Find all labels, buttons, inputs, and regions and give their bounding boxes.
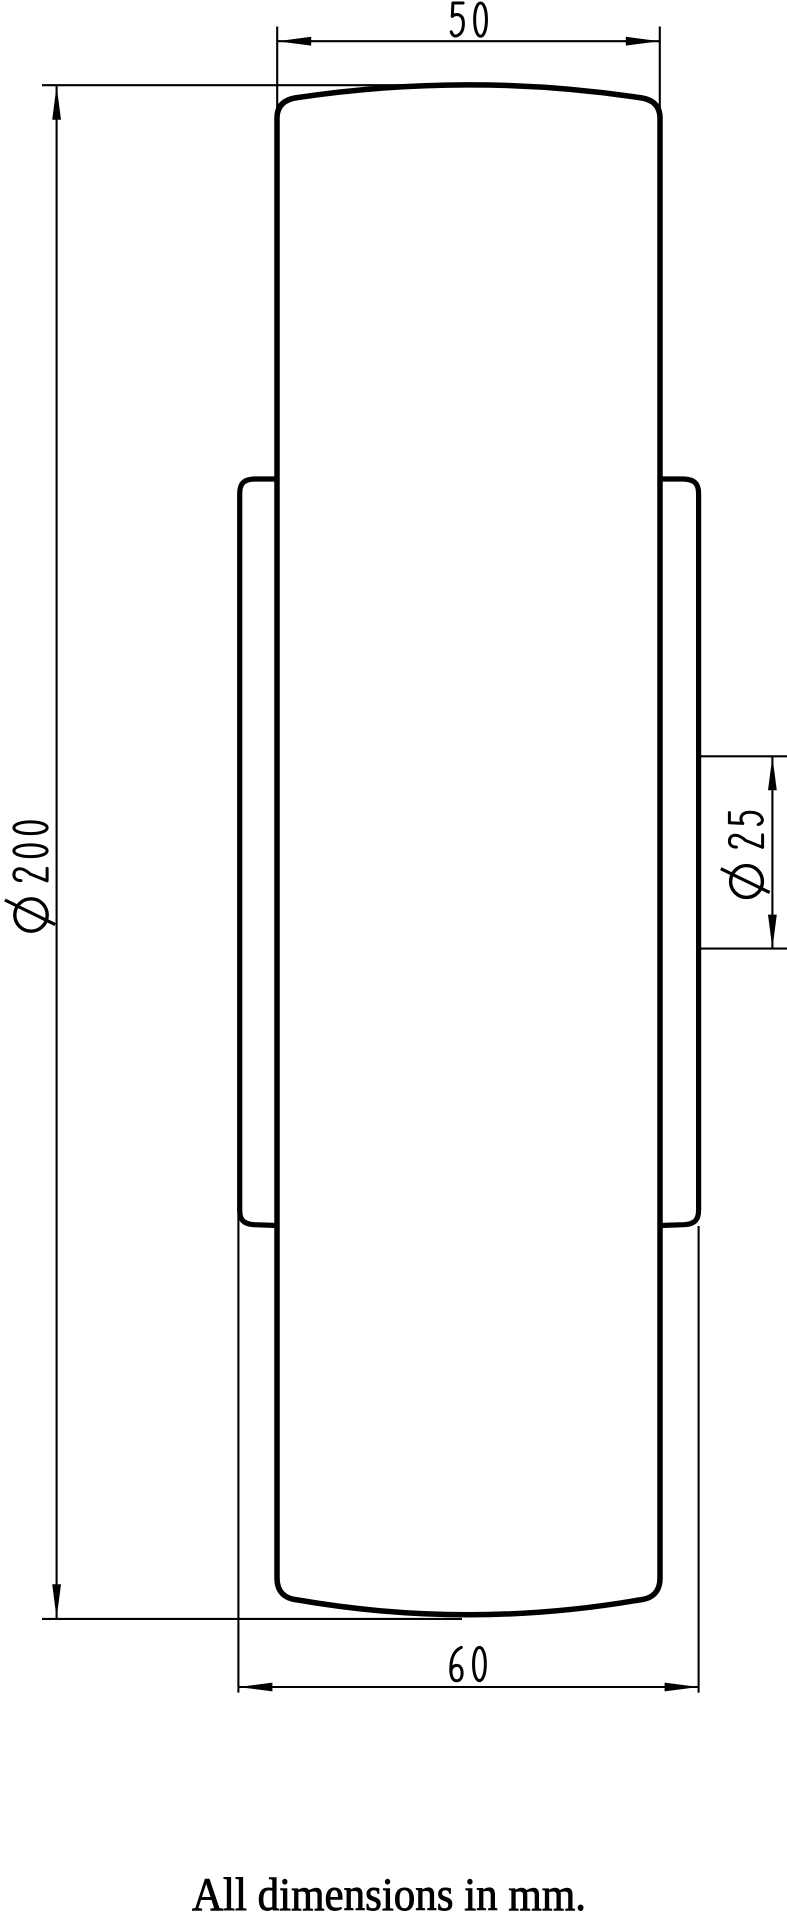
svg-text:All dimensions in mm.: All dimensions in mm.	[192, 1869, 586, 1920]
